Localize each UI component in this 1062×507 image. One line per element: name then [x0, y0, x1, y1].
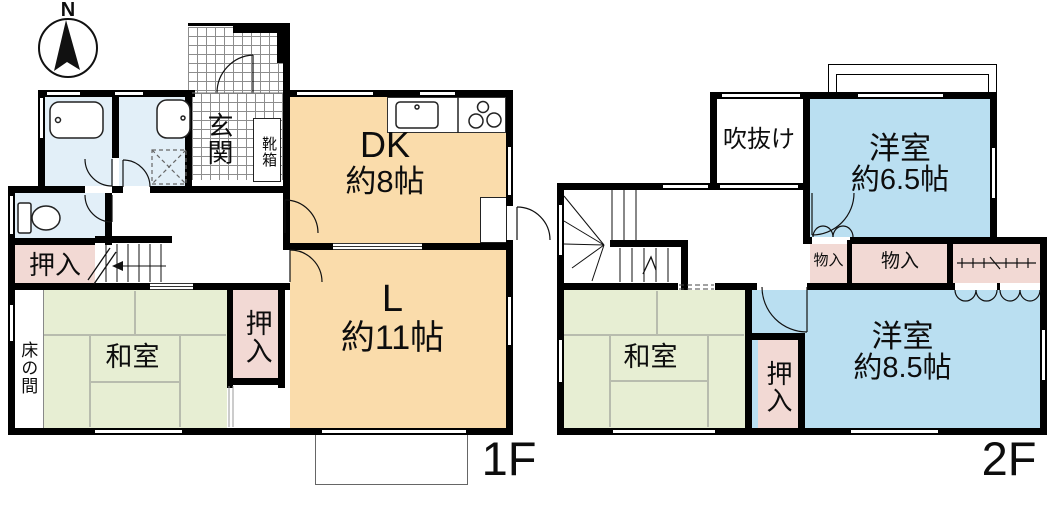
sliding-door	[333, 243, 422, 250]
window	[557, 340, 564, 382]
room-washroom	[119, 97, 185, 186]
window	[297, 90, 373, 97]
wall	[8, 283, 150, 290]
room-size: 約6.5帖	[851, 165, 949, 196]
window	[722, 92, 800, 99]
living-room-label: L 約11帖	[295, 268, 490, 368]
room-name: 洋室	[872, 320, 934, 353]
window	[663, 183, 708, 190]
western-65-label: 洋室 約6.5帖	[815, 128, 985, 200]
dk-room-label: DK 約8帖	[295, 118, 475, 206]
sliding-door	[150, 283, 193, 290]
oshiire-east-label: 押入	[235, 298, 277, 376]
wall	[1040, 283, 1047, 290]
window	[613, 428, 715, 435]
wall	[803, 237, 812, 244]
window	[990, 148, 997, 198]
window	[506, 147, 513, 195]
stairs-2f	[564, 190, 668, 282]
tokonoma-label: 床の間	[13, 328, 41, 408]
wall	[997, 283, 1000, 290]
washitsu-1f-label: 和室	[90, 344, 175, 372]
terrace-1f	[315, 435, 468, 485]
western-85-label: 洋室 約8.5帖	[800, 312, 1005, 392]
wall	[150, 186, 290, 193]
window	[322, 428, 466, 435]
monoire-east-label: 物入	[865, 249, 935, 275]
window	[851, 428, 938, 435]
room-name: 洋室	[869, 132, 931, 165]
window	[858, 92, 943, 99]
wall	[715, 283, 745, 290]
wall	[283, 243, 333, 250]
wall	[557, 283, 678, 290]
room-size: 約11帖	[341, 320, 444, 357]
entrance-porch	[188, 27, 283, 93]
window	[420, 90, 455, 97]
compass-north-label: N	[56, 0, 80, 22]
wall	[610, 240, 688, 247]
dk-rear-alcove	[480, 197, 507, 243]
wall	[681, 247, 688, 290]
floorplan-canvas: N DK 約8帖 L 約11帖 和室 床の間 押入 押入 玄関 靴箱 1F 吹抜…	[0, 0, 1062, 507]
wall	[8, 186, 85, 193]
window	[95, 428, 182, 435]
wall	[227, 378, 285, 385]
wall	[95, 236, 172, 243]
wall	[847, 240, 852, 283]
wall	[283, 50, 290, 250]
oshiire-nw-label: 押入	[20, 251, 90, 279]
washitsu-2f-label: 和室	[608, 344, 693, 372]
room-name: L	[382, 279, 403, 320]
window	[47, 90, 80, 97]
balcony-inner	[836, 74, 989, 92]
wall	[8, 238, 95, 245]
oshiire-2f-label: 押入	[758, 347, 798, 427]
window	[1040, 330, 1047, 380]
fukinuke-label: 吹抜け	[715, 126, 803, 154]
window	[8, 196, 15, 234]
wall	[227, 283, 233, 388]
floor-label-1f: 1F	[473, 433, 545, 485]
compass-needle-icon	[54, 20, 80, 71]
room-toilet	[15, 193, 105, 240]
room-bathroom	[45, 97, 113, 186]
window	[506, 297, 513, 345]
wall	[422, 243, 513, 250]
room-name: DK	[360, 126, 410, 165]
wall	[193, 283, 290, 290]
window	[115, 90, 143, 97]
wall	[188, 23, 233, 26]
wall	[807, 283, 955, 290]
shoe-cabinet-label: 靴箱	[257, 128, 279, 176]
wall	[947, 240, 953, 283]
compass	[39, 19, 97, 77]
monoire-west-label: 物入	[810, 250, 847, 272]
wall	[112, 186, 123, 193]
wall	[278, 283, 285, 388]
closet-hanger	[953, 244, 1040, 283]
wall	[112, 97, 119, 158]
stairs-1f	[88, 244, 166, 284]
genkan-label: 玄関	[203, 106, 235, 172]
room-size: 約8.5帖	[853, 353, 951, 384]
void-railing	[720, 183, 798, 190]
wall	[803, 92, 810, 244]
window	[38, 98, 45, 138]
wall	[745, 283, 752, 435]
room-size: 約8帖	[345, 165, 424, 198]
window	[557, 205, 564, 255]
wall	[557, 183, 663, 190]
wall	[185, 93, 192, 193]
floor-label-2f: 2F	[970, 433, 1048, 485]
